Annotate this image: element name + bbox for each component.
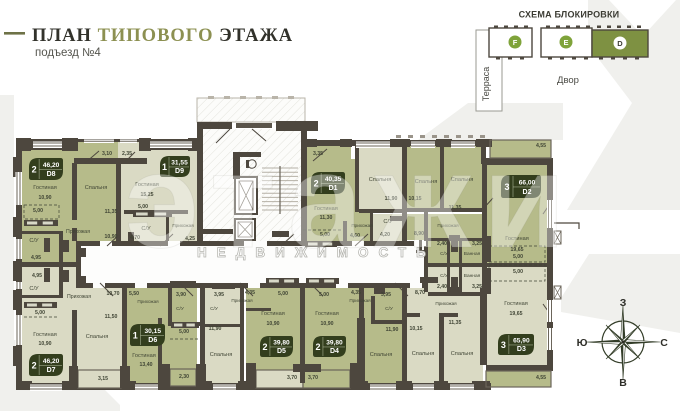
svg-text:подъезд №4: подъезд №4 [35,47,101,59]
svg-text:10,15: 10,15 [410,326,423,332]
svg-text:11,35: 11,35 [105,209,118,215]
svg-text:D7: D7 [47,367,56,374]
svg-text:С/У: С/У [29,238,39,244]
svg-text:D6: D6 [148,337,157,344]
svg-text:2: 2 [315,342,320,352]
svg-text:Прихожая: Прихожая [67,294,91,300]
svg-text:Спальня: Спальня [85,185,107,191]
svg-text:10,90: 10,90 [105,234,118,240]
svg-text:З: З [620,297,627,309]
svg-text:СХЕМА БЛОКИРОВКИ: СХЕМА БЛОКИРОВКИ [519,10,620,20]
svg-text:Гостиная: Гостиная [33,332,56,338]
svg-text:Гостиная: Гостиная [33,185,56,191]
svg-text:5,00: 5,00 [319,292,329,298]
svg-text:3,10: 3,10 [102,151,112,157]
svg-text:Гостиная: Гостиная [504,301,527,307]
svg-text:30,15: 30,15 [144,328,161,335]
svg-text:2: 2 [32,165,37,175]
svg-text:3,70: 3,70 [287,375,297,381]
svg-text:D4: D4 [330,348,339,355]
svg-text:2: 2 [262,342,267,352]
svg-text:11,90: 11,90 [209,326,222,332]
svg-text:E: E [563,38,568,47]
svg-text:С: С [660,337,668,349]
svg-text:5,00: 5,00 [33,208,43,214]
svg-text:5,50: 5,50 [129,291,139,297]
svg-text:4,95: 4,95 [31,255,41,261]
svg-text:D3: D3 [517,346,526,353]
svg-text:2: 2 [32,361,37,371]
svg-text:3,70: 3,70 [308,375,318,381]
svg-text:8,70: 8,70 [415,290,425,296]
svg-text:11,35: 11,35 [449,320,462,326]
svg-text:Прихожая: Прихожая [435,301,457,306]
svg-text:39,80: 39,80 [326,340,343,347]
svg-text:10,90: 10,90 [39,195,52,201]
svg-text:3: 3 [501,340,506,350]
svg-text:3,95: 3,95 [214,292,224,298]
svg-text:10,90: 10,90 [321,321,334,327]
svg-text:Гостиная: Гостиная [132,353,155,359]
svg-text:4,35: 4,35 [351,290,361,296]
svg-text:2,40: 2,40 [437,284,447,290]
svg-text:39,80: 39,80 [273,340,290,347]
svg-text:Прихожая: Прихожая [137,299,159,304]
svg-text:4,35: 4,35 [245,290,255,296]
svg-text:С/У: С/У [29,286,39,292]
svg-text:11,90: 11,90 [386,327,399,333]
svg-text:5,00: 5,00 [35,310,45,316]
svg-text:НЕДВИЖИМОСТЬ: НЕДВИЖИМОСТЬ [197,245,436,260]
svg-text:Гостиная: Гостиная [261,311,284,317]
svg-text:10,90: 10,90 [267,321,280,327]
svg-text:D5: D5 [277,348,286,355]
svg-text:5,00: 5,00 [179,329,189,335]
svg-text:19,65: 19,65 [510,311,523,317]
svg-text:Прихожая: Прихожая [231,298,253,303]
svg-text:3,15: 3,15 [98,376,108,382]
svg-text:65,90: 65,90 [513,338,530,345]
svg-text:Спальня: Спальня [370,352,392,358]
svg-text:10,70: 10,70 [107,291,120,297]
svg-text:Двор: Двор [557,75,579,86]
svg-text:2,30: 2,30 [179,374,189,380]
svg-text:С/У: С/У [210,306,219,312]
svg-text:4,55: 4,55 [536,375,546,381]
svg-text:Спальня: Спальня [86,334,108,340]
svg-text:В: В [619,377,627,389]
svg-text:1: 1 [133,331,138,341]
svg-text:ПЛАН ТИПОВОГО ЭТАЖА: ПЛАН ТИПОВОГО ЭТАЖА [32,26,293,46]
svg-text:Прихожая: Прихожая [66,229,90,235]
svg-text:Спальня: Спальня [412,351,434,357]
svg-text:5,00: 5,00 [278,291,288,297]
svg-text:11,50: 11,50 [105,314,118,320]
svg-text:3,90: 3,90 [176,292,186,298]
svg-text:С/У: С/У [385,306,394,312]
svg-text:Прихожая: Прихожая [349,298,371,303]
svg-text:D8: D8 [47,171,56,178]
svg-text:Спальня: Спальня [451,351,473,357]
svg-text:4,95: 4,95 [32,273,42,279]
svg-text:Гостиная: Гостиная [315,311,338,317]
svg-text:46,20: 46,20 [43,358,60,365]
svg-text:Ю: Ю [577,337,588,349]
svg-text:10,90: 10,90 [39,341,52,347]
svg-text:С/У: С/У [176,306,185,312]
svg-text:Терраса: Терраса [481,67,491,102]
svg-text:13,40: 13,40 [140,362,153,368]
svg-text:3,95: 3,95 [381,292,391,298]
svg-text:F: F [513,38,518,47]
svg-text:D: D [617,39,623,48]
svg-text:3,25: 3,25 [472,284,482,290]
svg-text:46,20: 46,20 [43,162,60,169]
svg-text:Спальня: Спальня [210,352,232,358]
